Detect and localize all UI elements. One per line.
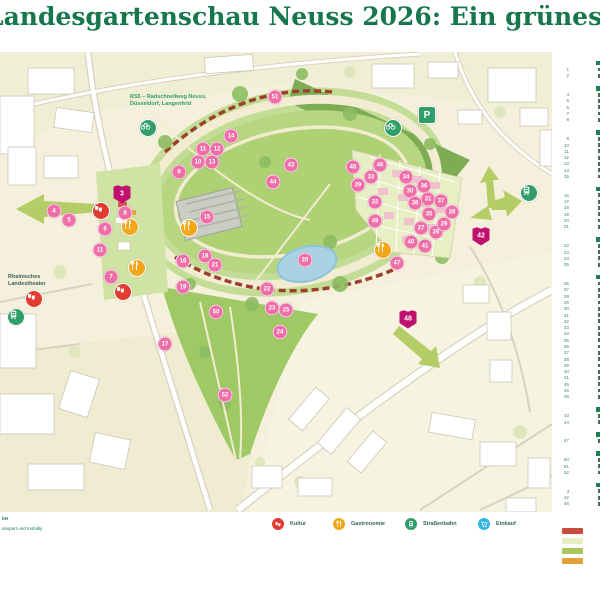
clipped-text — [596, 130, 600, 134]
credits-line2: ansport und mobility — [2, 524, 42, 534]
legend-label: Kultur — [290, 521, 306, 527]
clipped-text — [596, 483, 600, 487]
legend-label: Einkauf — [496, 521, 516, 527]
index-number: 8 — [554, 117, 569, 122]
index-number: 10 — [554, 143, 569, 148]
map-marker-17[interactable]: 17 — [158, 337, 173, 352]
index-number: 12 — [554, 155, 569, 160]
credits-line1: bH — [2, 514, 42, 524]
map-marker-25[interactable]: 25 — [279, 303, 294, 318]
clipped-text — [596, 451, 600, 455]
bike-marker[interactable] — [139, 119, 157, 137]
index-number: 37 — [554, 350, 569, 355]
index-number: 43 — [554, 413, 569, 418]
map-marker-15[interactable]: 15 — [200, 210, 215, 225]
map-legend: KulturGastronomieStraßenbahnEinkauf — [0, 512, 552, 552]
index-number: 5 — [554, 98, 569, 103]
index-number: 26 — [554, 281, 569, 286]
map-marker-9[interactable]: 9 — [172, 165, 187, 180]
index-number: 35 — [554, 338, 569, 343]
legend-item-kultur: Kultur — [272, 518, 306, 530]
index-number: 2 — [554, 73, 569, 78]
index-number: 9 — [554, 136, 569, 141]
index-number: 38 — [554, 357, 569, 362]
map-marker-20[interactable]: 20 — [298, 253, 313, 268]
title-strip: Landesgartenschau Neuss 2026: Ein grünes… — [0, 0, 600, 52]
map-marker-11[interactable]: 11 — [93, 243, 108, 258]
tram-icon — [521, 185, 532, 196]
index-number: 4 — [554, 92, 569, 97]
map-marker-40[interactable]: 40 — [404, 235, 419, 250]
rs5-label: RS5 – Radschnellweg Neuss, Düsseldorf, L… — [130, 94, 206, 107]
map-marker-5[interactable]: 5 — [62, 213, 77, 228]
index-number: 33 — [554, 325, 569, 330]
fork-knife-marker[interactable] — [180, 219, 198, 237]
map-marker-16[interactable]: 16 — [176, 254, 191, 269]
theater-label-line1: Rheinisches — [8, 274, 46, 281]
index-number: 44 — [554, 420, 569, 425]
index-number: 29 — [554, 300, 569, 305]
index-number: 23 — [554, 250, 569, 255]
map-marker-6[interactable]: 6 — [98, 222, 113, 237]
index-number: 3 — [554, 489, 569, 494]
index-number: 31 — [554, 313, 569, 318]
index-number: 49 — [554, 394, 569, 399]
clipped-text — [596, 432, 600, 436]
tram-marker[interactable] — [520, 184, 538, 202]
area-swatch — [562, 528, 583, 534]
map-marker-14[interactable]: 14 — [224, 129, 239, 144]
index-number: 1 — [554, 67, 569, 72]
index-number: 41 — [554, 375, 569, 380]
map-marker-29[interactable]: 29 — [437, 217, 452, 232]
map-marker-24[interactable]: 24 — [273, 325, 288, 340]
map-marker-27[interactable]: 27 — [414, 221, 429, 236]
index-number: 11 — [554, 149, 569, 154]
legend-item-einkauf: Einkauf — [478, 518, 516, 530]
index-number: 25 — [554, 262, 569, 267]
rs5-label-line1: RS5 – Radschnellweg Neuss, — [130, 94, 206, 101]
poi-index-list: 1245678910111213141516171819202122232425… — [554, 60, 600, 507]
map-marker-23[interactable]: 23 — [265, 301, 280, 316]
masks-marker[interactable] — [92, 202, 110, 220]
index-number: 19 — [554, 212, 569, 217]
tram-icon — [8, 309, 19, 320]
map-marker-35[interactable]: 35 — [422, 207, 437, 222]
clipped-text — [596, 275, 600, 279]
fork-knife-marker[interactable] — [121, 218, 139, 236]
fork-knife-icon — [181, 220, 192, 231]
entrance-shield-42[interactable]: 42 — [473, 227, 490, 246]
index-number: 14 — [554, 168, 569, 173]
index-number: 45 — [554, 382, 569, 387]
entrance-shield-3[interactable]: 3 — [114, 185, 131, 204]
fork-knife-icon — [333, 518, 345, 530]
index-number: 36 — [554, 344, 569, 349]
masks-marker[interactable] — [25, 290, 43, 308]
index-number: 50 — [554, 457, 569, 462]
index-number: 27 — [554, 287, 569, 292]
index-number: 51 — [554, 464, 569, 469]
index-row-48: 48 — [554, 501, 600, 507]
legend-item-straenbahn: Straßenbahn — [405, 518, 457, 530]
fork-knife-icon — [129, 260, 140, 271]
index-number: 42 — [554, 495, 569, 500]
map-marker-38[interactable]: 38 — [408, 196, 423, 211]
index-number: 30 — [554, 306, 569, 311]
index-number: 21 — [554, 224, 569, 229]
masks-icon — [272, 518, 284, 530]
clipped-text — [596, 187, 600, 191]
index-number: 6 — [554, 105, 569, 110]
map-marker-43[interactable]: 43 — [284, 158, 299, 173]
masks-icon — [115, 284, 126, 295]
marker-layer: 4567891011121314151617181920212223242526… — [0, 52, 552, 512]
map-marker-51[interactable]: 51 — [268, 90, 283, 105]
entrance-shield-48[interactable]: 48 — [400, 310, 417, 329]
index-number: 24 — [554, 256, 569, 261]
index-number: 39 — [554, 363, 569, 368]
clipped-text — [596, 86, 600, 90]
map-marker-13[interactable]: 13 — [205, 155, 220, 170]
fork-knife-marker[interactable] — [128, 259, 146, 277]
clipped-text — [596, 407, 600, 411]
theater-label-line2: Landestheater — [8, 281, 46, 288]
area-swatch — [562, 558, 583, 564]
legend-label: Gastronomie — [351, 521, 385, 527]
index-number: 46 — [554, 388, 569, 393]
index-number: 18 — [554, 205, 569, 210]
index-number: 20 — [554, 218, 569, 223]
map-marker-45[interactable]: 45 — [346, 160, 361, 175]
map-marker-22[interactable]: 22 — [260, 282, 275, 297]
map-marker-4[interactable]: 4 — [47, 204, 62, 219]
map-marker-36[interactable]: 36 — [417, 179, 432, 194]
index-number: 47 — [554, 438, 569, 443]
index-number: 48 — [554, 501, 569, 506]
index-number: 52 — [554, 470, 569, 475]
clipped-text — [596, 237, 600, 241]
map-marker-34[interactable]: 34 — [399, 170, 414, 185]
tram-icon — [405, 518, 417, 530]
map-marker-39[interactable]: 39 — [351, 178, 366, 193]
index-number: 13 — [554, 161, 569, 166]
bike-icon — [140, 120, 151, 131]
fork-knife-icon — [122, 219, 133, 230]
map-marker-50[interactable]: 50 — [209, 305, 224, 320]
map-marker-41[interactable]: 41 — [418, 239, 433, 254]
map-marker-49[interactable]: 49 — [368, 214, 383, 229]
masks-marker[interactable] — [114, 283, 132, 301]
index-number: 32 — [554, 319, 569, 324]
map-marker-19[interactable]: 19 — [176, 280, 191, 295]
cart-icon — [478, 518, 490, 530]
index-number: 28 — [554, 294, 569, 299]
tram-marker[interactable] — [7, 308, 25, 326]
bike-marker[interactable] — [384, 119, 402, 137]
fork-knife-marker[interactable] — [374, 241, 392, 259]
theater-label: Rheinisches Landestheater — [8, 274, 46, 287]
map-marker-47[interactable]: 47 — [390, 256, 405, 271]
map-marker-37[interactable]: 37 — [434, 194, 449, 209]
legend-label: Straßenbahn — [423, 521, 457, 527]
index-number: 7 — [554, 111, 569, 116]
index-number: 15 — [554, 174, 569, 179]
index-number: 34 — [554, 331, 569, 336]
clipped-text — [596, 61, 600, 65]
index-number: 17 — [554, 199, 569, 204]
map-marker-7[interactable]: 7 — [104, 270, 119, 285]
page-title: Landesgartenschau Neuss 2026: Ein grünes… — [0, 2, 600, 31]
map-marker-46[interactable]: 46 — [373, 158, 388, 173]
masks-icon — [26, 291, 37, 302]
bike-icon — [385, 120, 396, 131]
map-marker-21[interactable]: 21 — [208, 258, 223, 273]
fork-knife-icon — [375, 242, 386, 253]
index-number: 40 — [554, 369, 569, 374]
area-swatch — [562, 548, 583, 554]
site-map: 4567891011121314151617181920212223242526… — [0, 52, 552, 512]
area-color-legend — [562, 528, 583, 568]
rs5-label-line2: Düsseldorf, Langenfeld — [130, 101, 206, 108]
area-swatch — [562, 538, 583, 544]
map-marker-10[interactable]: 10 — [191, 155, 206, 170]
poster: { "title": "Landesgartenschau Neuss 2026… — [0, 0, 600, 600]
index-number: 22 — [554, 243, 569, 248]
legend-item-gastronomie: Gastronomie — [333, 518, 385, 530]
masks-icon — [93, 203, 104, 214]
parking-marker[interactable]: P — [418, 106, 436, 124]
index-number: 16 — [554, 193, 569, 198]
credits: bH ansport und mobility — [2, 514, 42, 534]
map-marker-32[interactable]: 32 — [368, 195, 383, 210]
map-marker-52[interactable]: 52 — [218, 388, 233, 403]
map-marker-44[interactable]: 44 — [266, 175, 281, 190]
